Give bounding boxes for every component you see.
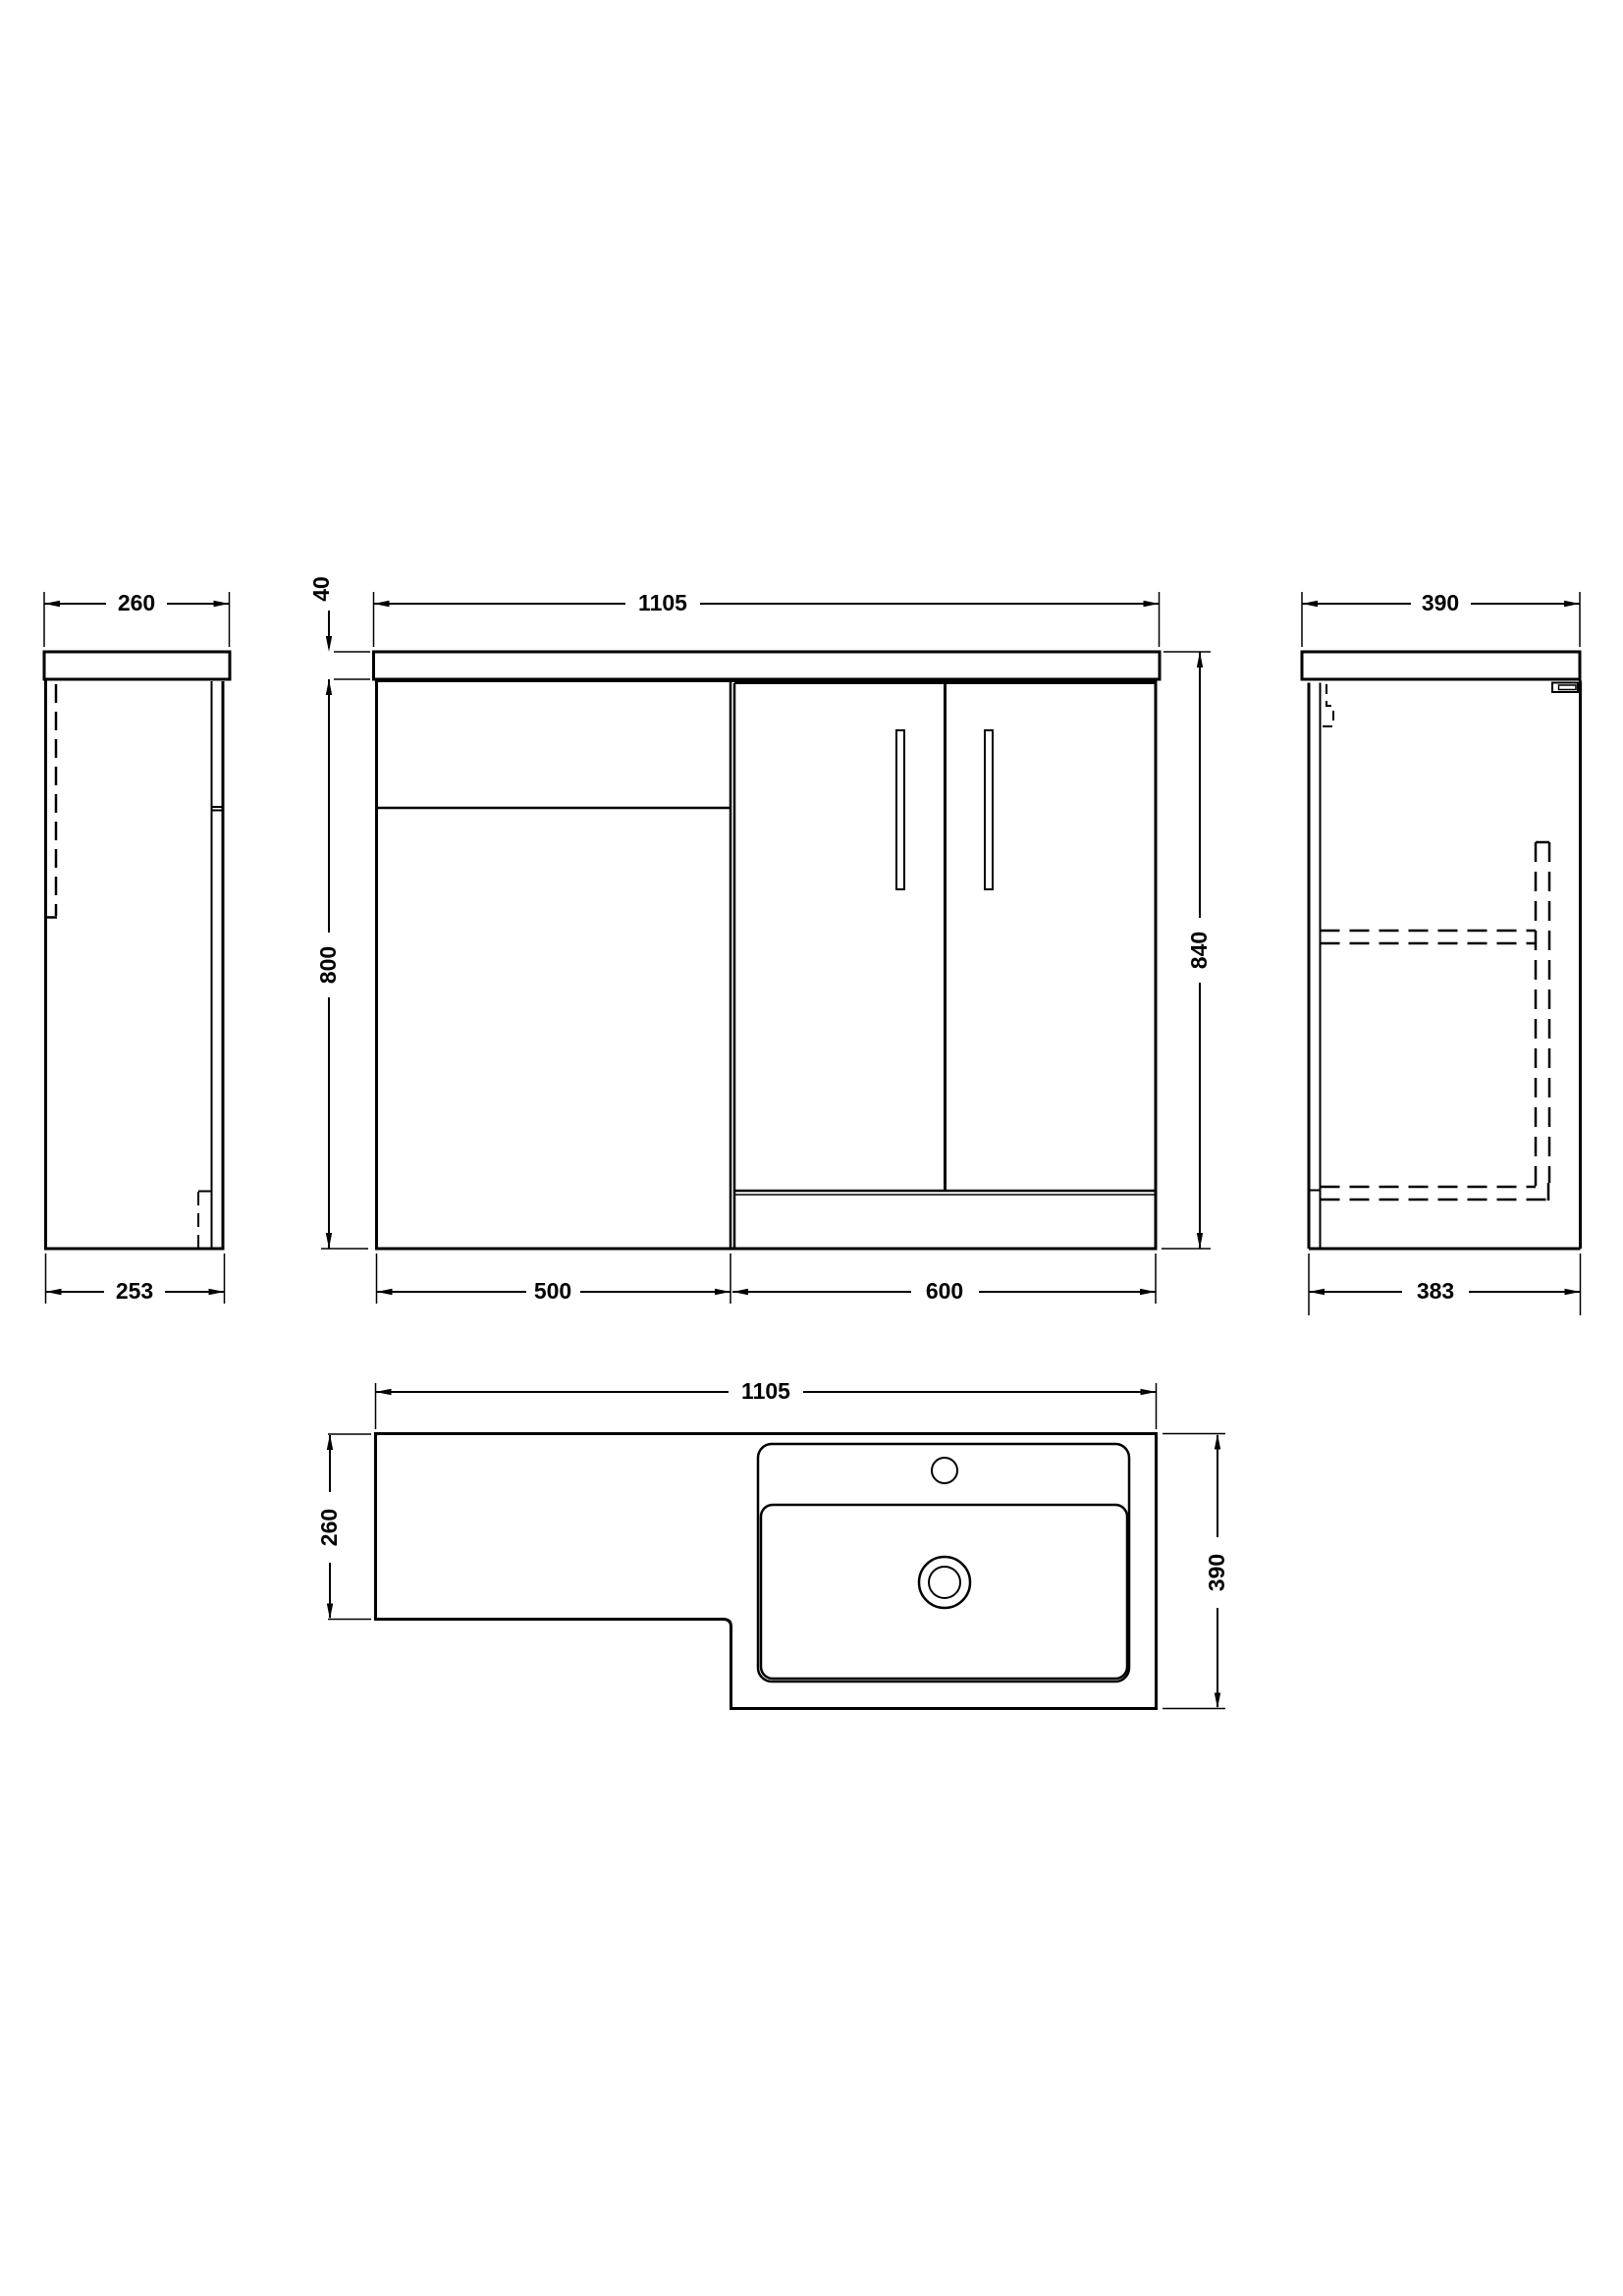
basin-waste-outer-icon <box>919 1557 970 1608</box>
arrowhead <box>715 1289 730 1295</box>
dim-front-overall-width: 1105 <box>374 590 1160 647</box>
left-view-cabinet-outline <box>46 681 224 1250</box>
plan-worktop-outline <box>376 1434 1157 1709</box>
arrowhead <box>376 1389 392 1395</box>
arrowhead <box>377 1289 393 1295</box>
arrowhead <box>327 1604 333 1620</box>
left-door-handle <box>896 730 904 889</box>
dim-label-front-wc-width: 500 <box>534 1278 571 1304</box>
arrowhead <box>732 1289 748 1295</box>
dim-label-front-overall-width: 1105 <box>638 590 687 615</box>
right-view-worktop <box>1302 652 1580 679</box>
dim-front-vanity-width: 600 <box>732 1254 1156 1304</box>
dim-right-cabinet-depth: 383 <box>1309 1254 1581 1315</box>
arrowhead <box>1565 1289 1581 1295</box>
drawing-page: 260 253 <box>0 0 1623 2296</box>
front-worktop <box>374 652 1161 679</box>
right-view-hinge-hidden-detail <box>1322 684 1334 726</box>
dim-right-worktop-depth: 390 <box>1302 590 1580 647</box>
dim-label-plan-wc-depth: 260 <box>316 1509 342 1546</box>
dim-plan-overall-width: 1105 <box>376 1378 1157 1429</box>
front-cabinet-outline <box>377 681 1157 1250</box>
arrowhead <box>209 1289 225 1295</box>
arrowhead <box>1309 1289 1325 1295</box>
dim-left-worktop-depth: 260 <box>44 590 230 647</box>
arrowhead <box>1197 652 1203 667</box>
arrowhead <box>374 601 390 607</box>
arrowhead <box>326 1233 332 1249</box>
front-elevation-view: 1105 40 800 840 <box>308 576 1212 1304</box>
arrowhead <box>46 1289 62 1295</box>
arrowhead <box>214 601 230 607</box>
dim-label-plan-basin-depth: 390 <box>1204 1554 1229 1591</box>
dim-label-left-worktop-depth: 260 <box>118 590 155 615</box>
arrowhead <box>1197 1233 1203 1249</box>
arrowhead <box>1215 1693 1220 1709</box>
arrowhead <box>1140 1289 1156 1295</box>
plan-basin-rim <box>758 1444 1129 1682</box>
right-view-fixing-bracket <box>1552 683 1578 693</box>
right-door-handle <box>985 730 993 889</box>
left-view-worktop <box>44 652 230 679</box>
arrowhead <box>1564 601 1580 607</box>
dim-plan-wc-depth: 260 <box>316 1434 371 1620</box>
arrowhead <box>44 601 60 607</box>
dim-front-worktop-thickness: 40 <box>308 576 370 695</box>
dim-plan-basin-depth: 390 <box>1163 1434 1229 1709</box>
arrowhead <box>1215 1434 1220 1450</box>
technical-drawing-canvas: 260 253 <box>0 0 1623 2296</box>
dim-left-cabinet-depth: 253 <box>46 1254 225 1304</box>
dim-front-wc-width: 500 <box>377 1254 731 1304</box>
plan-basin-bowl <box>761 1505 1127 1679</box>
right-view-fixing-bracket-inner <box>1559 685 1577 690</box>
dim-label-right-worktop-depth: 390 <box>1422 590 1459 615</box>
basin-tap-hole-icon <box>932 1458 957 1483</box>
left-side-view: 260 253 <box>44 590 230 1304</box>
plan-view: 1105 260 390 <box>316 1378 1229 1709</box>
right-side-view: 390 383 <box>1302 590 1581 1315</box>
dim-label-left-cabinet-depth: 253 <box>116 1278 153 1304</box>
dim-label-front-cabinet-height: 800 <box>315 946 341 984</box>
dim-label-front-vanity-width: 600 <box>926 1278 963 1304</box>
dim-front-total-height: 840 <box>1162 652 1212 1249</box>
arrowhead <box>1141 1389 1157 1395</box>
arrowhead <box>326 636 332 652</box>
arrowhead <box>327 1434 333 1450</box>
arrowhead <box>1144 601 1160 607</box>
dim-front-cabinet-height: 800 <box>315 679 368 1249</box>
dim-label-right-cabinet-depth: 383 <box>1417 1278 1454 1304</box>
dim-label-plan-overall-width: 1105 <box>741 1378 790 1404</box>
arrowhead <box>1302 601 1318 607</box>
basin-waste-inner-icon <box>929 1567 960 1598</box>
dim-label-front-total-height: 840 <box>1186 932 1212 969</box>
dim-label-front-worktop-thickness: 40 <box>308 576 334 602</box>
